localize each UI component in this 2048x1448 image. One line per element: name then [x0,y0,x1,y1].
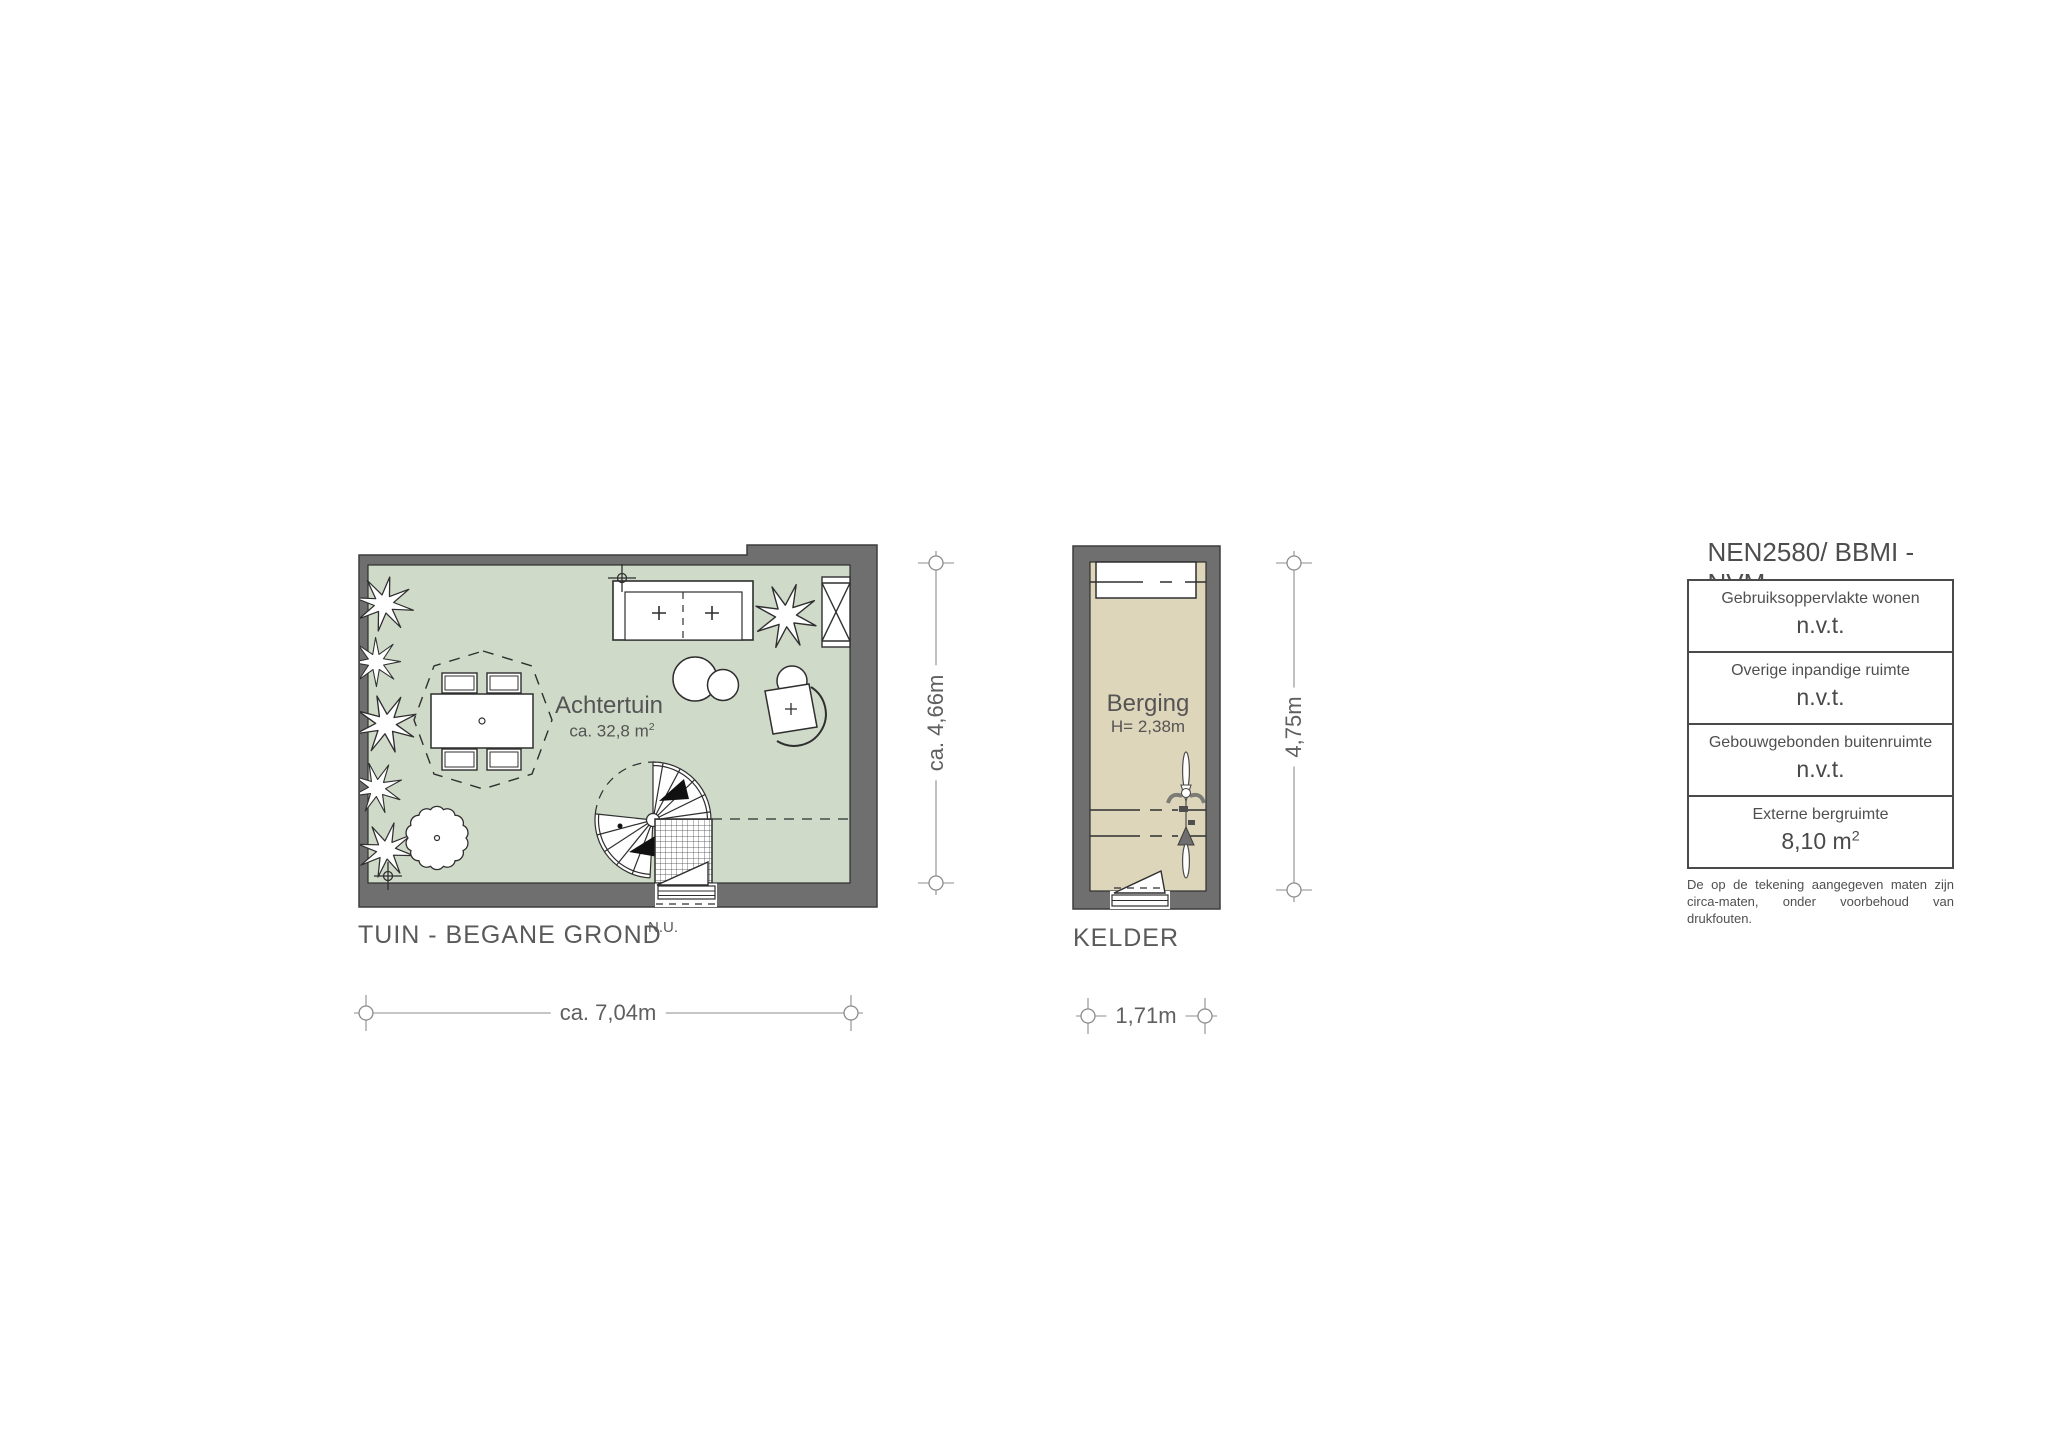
garden-table [431,694,533,748]
garden-area-sup: 2 [649,721,655,733]
legend-row-value: n.v.t. [1689,684,1952,711]
kelder-room-height: H= 2,38m [1111,717,1185,737]
legend-disclaimer: De op de tekening aangegeven maten zijn … [1687,876,1954,927]
garden-plan [341,545,954,1031]
garden-area-value: ca. 32,8 m [569,722,648,741]
legend-table: Gebruiksoppervlakte wonen n.v.t. Overige… [1687,579,1954,869]
legend-row-inpandig: Overige inpandige ruimte n.v.t. [1689,651,1952,723]
legend-row-label: Overige inpandige ruimte [1689,662,1952,680]
garden-room-area: ca. 32,8 m2 [569,721,654,742]
kelder-width-dim-label: 1,71m [1106,1003,1185,1029]
legend-row-value: n.v.t. [1689,612,1952,639]
legend-row-label: Gebouwgebonden buitenruimte [1689,734,1952,752]
kelder-shelf [1090,562,1206,598]
floorplan-page: TUIN - BEGANE GROND N.U. Achtertuin ca. … [0,0,2048,1448]
storage-box [822,577,850,647]
legend-row-bergruimte: Externe bergruimte 8,10 m2 [1689,795,1952,867]
kelder-height-dim-label: 4,75m [1281,687,1307,766]
garden-height-dim-label: ca. 4,66m [923,666,949,781]
garden-door-note: N.U. [648,919,678,936]
legend-row-label: Externe bergruimte [1689,806,1952,824]
garden-width-dim-label: ca. 7,04m [551,1000,666,1026]
kelder-room-label: Berging [1107,690,1190,718]
legend-row-wonen: Gebruiksoppervlakte wonen n.v.t. [1689,581,1952,651]
bush [406,806,468,869]
legend-row-value: n.v.t. [1689,756,1952,783]
kelder-plan [1073,546,1312,1034]
disclaimer-line-1: De op de tekening aangegeven maten zijn [1687,876,1954,893]
kelder-plan-title: KELDER [1073,924,1179,953]
legend-row-label: Gebruiksoppervlakte wonen [1689,590,1952,608]
garden-room-label: Achtertuin [555,692,663,720]
legend-row-value: 8,10 m2 [1689,828,1952,855]
garden-bench [613,581,753,640]
legend-row-buitenruimte: Gebouwgebonden buitenruimte n.v.t. [1689,723,1952,795]
disclaimer-line-2: circa-maten, onder voorbehoud van drukfo… [1687,893,1954,927]
garden-plan-title: TUIN - BEGANE GROND [358,921,662,950]
